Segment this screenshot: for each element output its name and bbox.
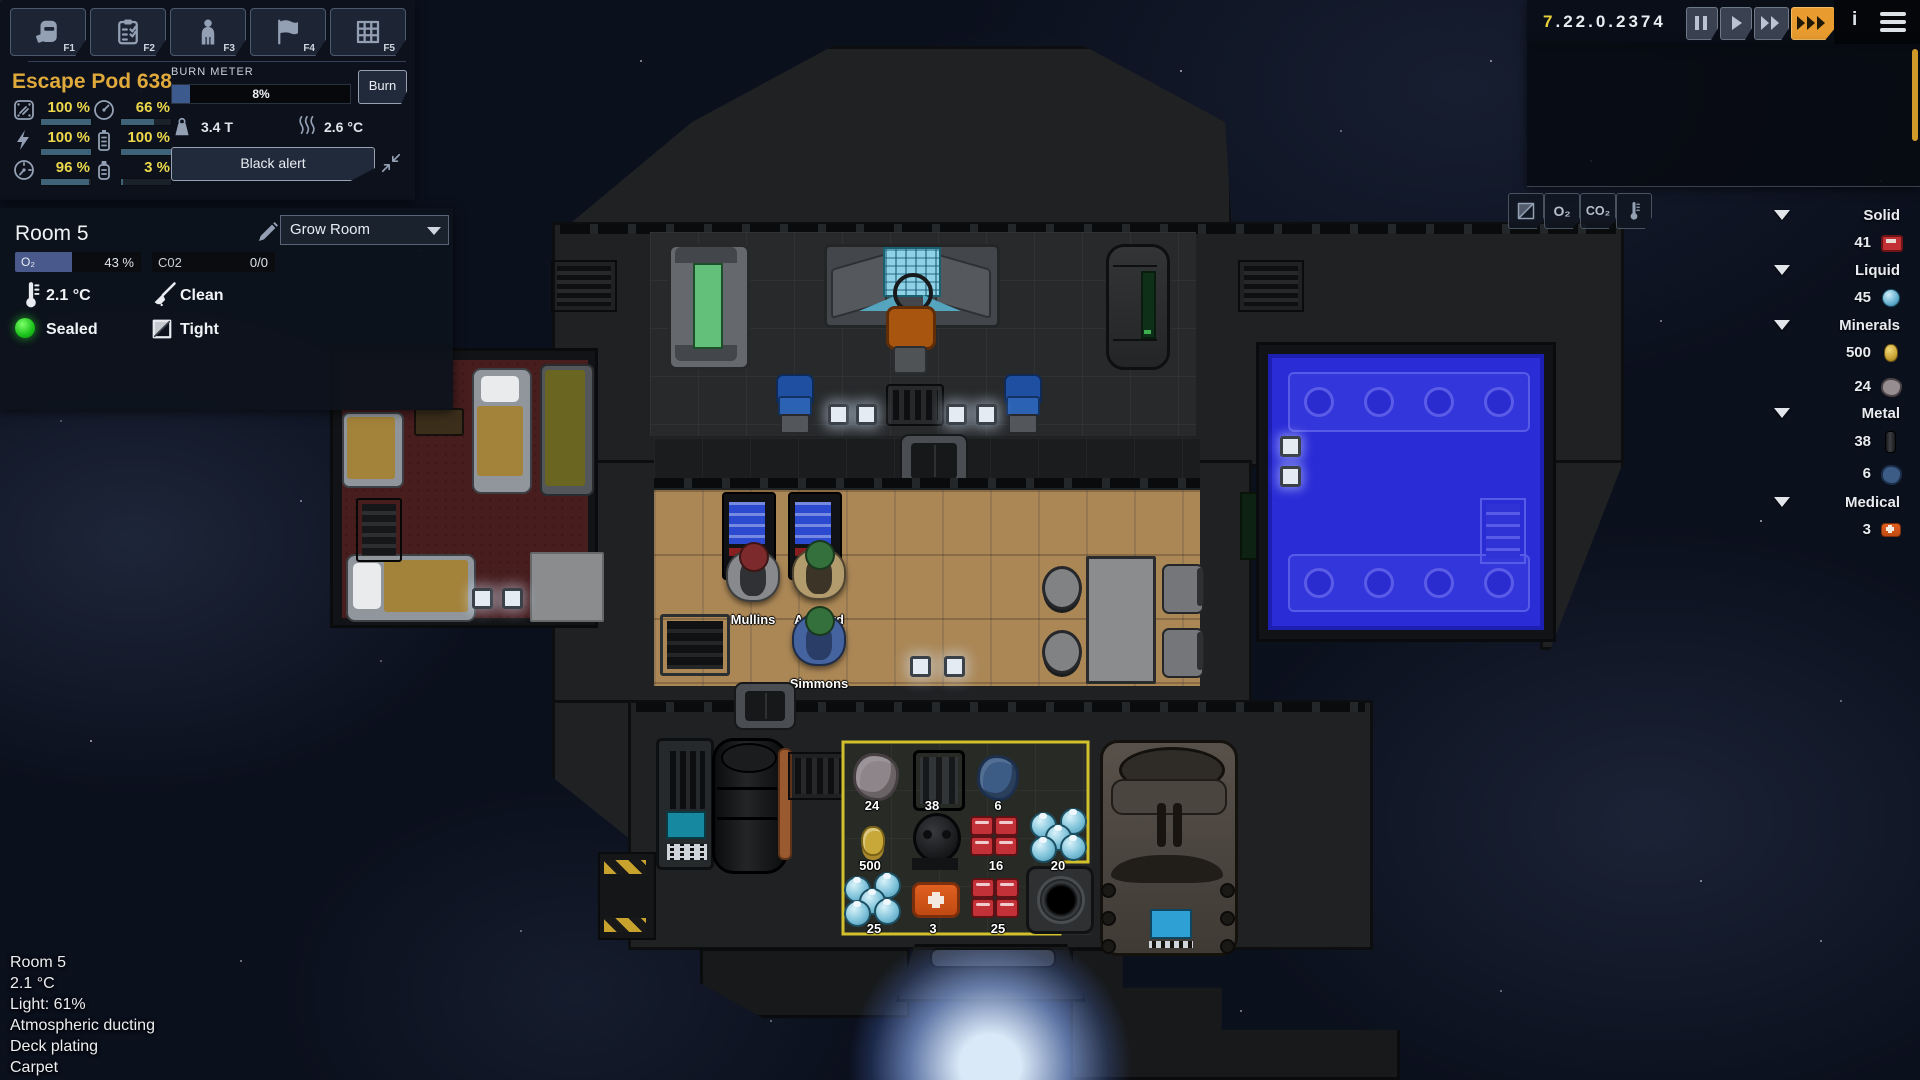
info-button[interactable]: i [1852,9,1857,31]
floor-light [910,656,931,677]
air-vent[interactable] [551,260,617,312]
water-stat: 3 % [92,158,170,184]
helmet-mask-icon [33,17,63,47]
tooltip-line: Deck plating [10,1036,155,1057]
resource-item[interactable]: 24 [1774,375,1900,397]
toolbar-button-tasks[interactable]: F2 [90,8,166,56]
thruster-glow [845,950,1135,1080]
chevron-down-icon [1774,320,1790,330]
mass-icon [171,125,193,142]
toolbar-button-hazards[interactable]: F1 [10,8,86,56]
thermometer-icon [18,280,44,315]
crew-member-simmons[interactable] [792,604,846,670]
stack-count: 24 [865,798,879,813]
stone-stack[interactable] [853,753,899,801]
toolbar-button-crew[interactable]: F3 [170,8,246,56]
floor-light [1280,466,1301,487]
generator-screen [666,811,706,839]
menu-block: i [1834,0,1920,44]
log-scrollbar[interactable] [1912,49,1918,141]
collapse-icon[interactable] [380,152,402,179]
bed[interactable] [346,554,476,622]
cryo-pod[interactable] [1106,244,1170,370]
chevron-down-icon [1774,497,1790,507]
black-alert-button[interactable]: Black alert [171,147,375,181]
stone-icon [1880,376,1900,396]
event-log-panel [1527,44,1920,187]
tightness-icon [151,318,173,345]
water-jug-stack[interactable] [1028,808,1090,858]
engine-screen [1150,909,1192,939]
bed[interactable] [540,364,594,496]
resource-item[interactable]: 3 [1774,518,1900,540]
tile-inspect-tooltip: Room 5 2.1 °C Light: 61% Atmospheric duc… [10,952,155,1078]
pause-button[interactable] [1686,7,1718,40]
chair[interactable] [1162,628,1204,678]
resource-group-metal[interactable]: Metal [1774,402,1900,424]
floor-light [856,404,877,425]
medkit-stack[interactable] [912,882,960,918]
floor-light [976,404,997,425]
hamburger-icon [1880,12,1906,16]
water-canister-icon [92,158,116,182]
room-sealed: Sealed [46,321,98,339]
burn-button[interactable]: Burn [358,70,407,104]
rename-room-button[interactable] [256,220,280,249]
toolbar-button-missions[interactable]: F4 [250,8,326,56]
coin-stack[interactable] [861,826,885,856]
crew-chair-blue[interactable] [776,374,814,432]
chevron-down-icon [1774,265,1790,275]
time-panel: 7.22.0.2374 i [1527,0,1920,44]
bed[interactable] [472,368,532,494]
power-stat: 100 % [12,128,90,154]
menu-button[interactable] [1880,12,1906,32]
round-machine[interactable] [1026,866,1094,934]
divider [28,61,406,62]
captain-chair[interactable] [886,306,932,372]
blue-ore-icon [1880,463,1900,483]
door[interactable] [734,682,796,730]
floor-grate[interactable] [886,384,944,426]
power-icon [12,128,36,152]
pressure-gauge-icon [12,158,36,182]
dome-machine[interactable] [913,813,961,863]
viewport-icon [12,98,36,122]
wall-trim [654,478,1200,488]
main-engine[interactable] [1100,740,1238,956]
thermometer-icon [1625,200,1643,222]
status-light-green [693,263,723,349]
burn-meter-bar: 8% [171,84,351,104]
floor-light [944,656,965,677]
floor-light [1280,436,1301,457]
red-crate-icon [1880,232,1900,252]
burn-meter-label: BURN METER [171,66,254,78]
gauge-icon [92,98,116,122]
burn-percent: 8% [172,87,350,101]
pod-status-slot [1141,271,1156,339]
stack-count: 500 [859,858,881,873]
dome-machine-base [912,858,958,870]
metal-rod-icon [1880,431,1900,451]
crew-chair-blue[interactable] [1004,374,1042,432]
floor-light [472,588,493,609]
tooltip-line: 2.1 °C [10,973,155,994]
hazard-column [598,852,656,940]
ration-pack-stack[interactable] [970,816,1016,854]
room-panel: Room 5 Grow Room O₂ 43 % C02 0/0 2.1 °C … [0,208,453,410]
crew-member-ashford[interactable] [792,538,846,604]
stack-count: 20 [1051,858,1065,873]
floor-light [502,588,523,609]
oxygen-stat: 66 % [92,98,170,124]
o2-overlay-toggle[interactable]: O₂ [1544,193,1580,229]
max-speed-icon [1797,16,1805,30]
tooltip-line: Room 5 [10,952,155,973]
blue-panel[interactable] [1288,372,1530,432]
shelf[interactable] [1480,498,1526,564]
stool[interactable] [1042,566,1082,610]
ration-pack-stack[interactable] [971,878,1017,916]
bed[interactable] [342,412,404,488]
resource-group-liquid[interactable]: Liquid [1774,259,1900,281]
side-table[interactable] [414,408,464,436]
crew-member-mullins[interactable] [726,540,780,606]
pressure-stat: 96 % [12,158,90,184]
fast-forward-button[interactable] [1754,7,1789,40]
stack-count: 25 [991,921,1005,936]
floor-mat[interactable] [530,552,604,622]
resource-item[interactable]: 41 [1774,231,1900,253]
gold-nugget-icon [1880,342,1900,362]
play-icon [1732,16,1742,30]
tooltip-line: Carpet [10,1057,155,1078]
medkit-icon [1880,519,1900,539]
broom-icon [150,280,178,313]
battery-icon [92,128,116,152]
blue-ore-stack[interactable] [977,755,1019,801]
crew-icon [193,17,223,47]
pause-icon [1695,16,1699,30]
sealed-indicator-light [15,318,35,338]
chair[interactable] [1162,564,1204,614]
resource-group-minerals[interactable]: Minerals [1774,314,1900,336]
stack-count: 3 [929,921,936,936]
room-type-dropdown[interactable]: Grow Room [280,215,449,245]
build-grid-icon [353,17,383,47]
pencil-icon [256,220,280,244]
mass-row: 3.4 T [171,116,291,140]
battery-stat: 100 % [92,128,170,154]
max-speed-button[interactable] [1791,7,1835,40]
task-clipboard-icon [113,17,143,47]
resource-item[interactable]: 38 [1774,430,1900,452]
stack-count: 16 [989,858,1003,873]
engine-cylinder[interactable] [712,738,788,874]
co2-overlay-toggle[interactable]: CO₂ [1580,193,1616,229]
chevron-down-icon [1774,210,1790,220]
water-drop-icon [1880,287,1900,307]
tightness-icon [1516,201,1536,221]
dining-table[interactable] [1086,556,1156,684]
resource-item[interactable]: 500 [1774,341,1900,363]
ship-panel: F1 F2 F3 F4 F5 Escape Pod 638 100 % 66 [0,0,415,200]
room-cleanliness: Clean [180,287,224,305]
air-vent[interactable] [1238,260,1304,312]
resource-item[interactable]: 45 [1774,286,1900,308]
room-temperature: 2.1 °C [46,287,91,305]
water-jug-stack[interactable] [842,872,904,922]
room-tightness: Tight [180,321,219,339]
temperature-row: 2.6 °C [296,114,406,138]
stack-count: 6 [994,798,1001,813]
room-title: Room 5 [15,222,89,246]
floor-light [946,404,967,425]
tooltip-line: Atmospheric ducting [10,1015,155,1036]
resource-group-solid[interactable]: Solid [1774,204,1900,226]
resource-group-medical[interactable]: Medical [1774,491,1900,513]
chevron-down-icon [427,227,441,235]
stool[interactable] [1042,630,1082,674]
fast-forward-icon [1761,16,1769,30]
resource-item[interactable]: 6 [1774,462,1900,484]
floor-light [828,404,849,425]
ship-name: Escape Pod 638 [12,70,172,94]
resource-sidebar: Solid 41 Liquid 45 Minerals 500 24 Metal… [1770,202,1910,542]
life-support-machine[interactable] [668,244,750,370]
toolbar-button-build[interactable]: F5 [330,8,406,56]
stack-count: 38 [925,798,939,813]
blue-room-floor[interactable] [1268,354,1544,630]
game-screen: Mullins Ashford Simmons [0,0,1920,1080]
chevron-down-icon [1774,408,1790,418]
dresser[interactable] [356,498,402,562]
play-button[interactable] [1720,7,1752,40]
temperature-overlay-toggle[interactable] [1616,193,1652,229]
tooltip-line: Light: 61% [10,994,155,1015]
flag-icon [273,17,303,47]
generator[interactable] [656,738,714,870]
game-date: 7.22.0.2374 [1543,12,1666,32]
stack-count: 25 [867,921,881,936]
tightness-overlay-toggle[interactable] [1508,193,1544,229]
heat-waves-icon [296,123,318,140]
o2-bar: O₂ 43 % [15,252,141,272]
co2-bar: C02 0/0 [152,252,275,272]
hull-stat: 100 % [12,98,90,124]
